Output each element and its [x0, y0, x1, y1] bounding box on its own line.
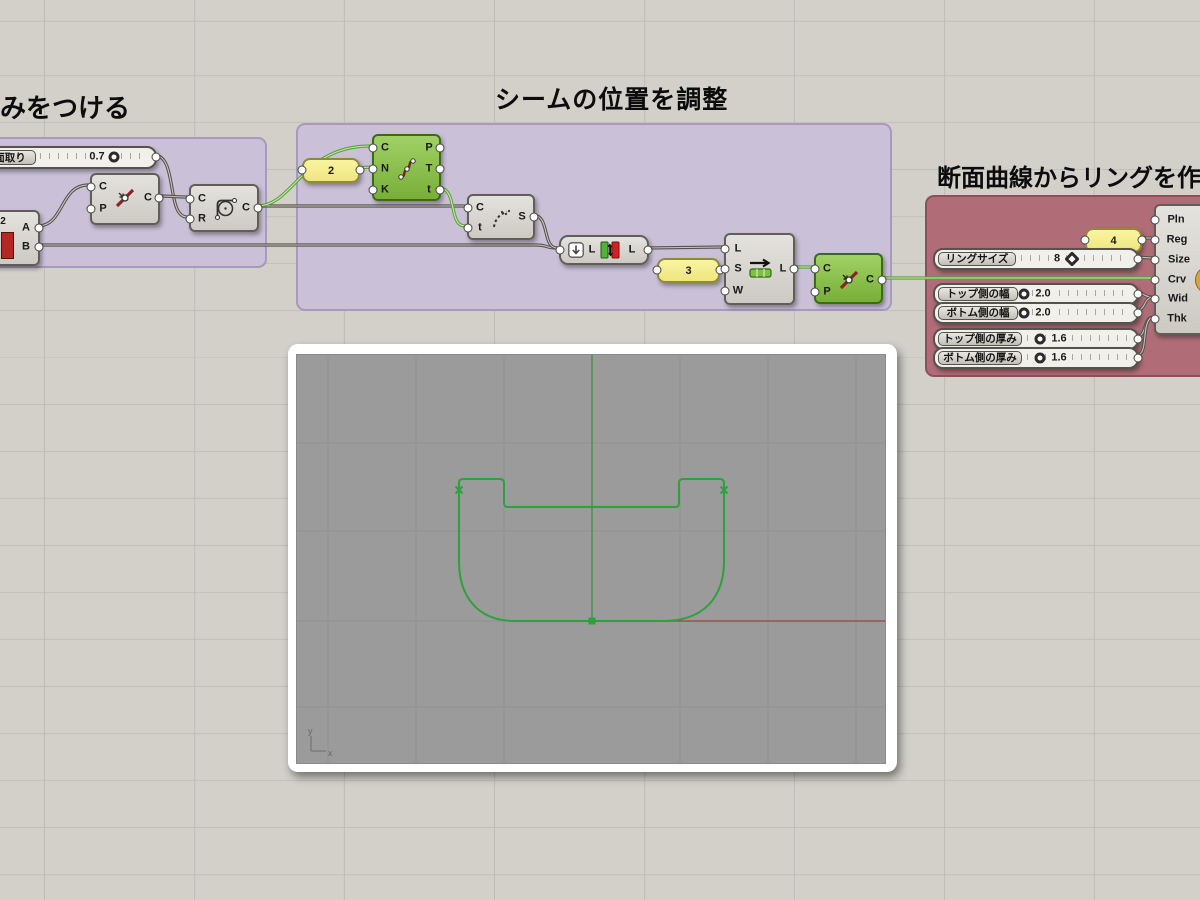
fillet-output-c[interactable]: [254, 204, 263, 213]
fillet-icon: [212, 195, 239, 222]
top-thickness-label: トップ側の厚み: [938, 332, 1022, 346]
shift-input-w[interactable]: [721, 287, 730, 296]
top-thickness-knob[interactable]: [1035, 334, 1046, 345]
panel-2-output[interactable]: [356, 166, 365, 175]
top-thickness-value: 1.6: [1049, 334, 1068, 345]
split-output-b[interactable]: [35, 243, 44, 252]
ring-size-label: リングサイズ: [938, 252, 1016, 266]
flip2-output-c[interactable]: [878, 276, 887, 285]
bottom-thickness-slider[interactable]: ボトム側の厚み 1.6: [933, 347, 1139, 369]
bottom-width-label: ボトム側の幅: [938, 306, 1018, 320]
panel-2-input[interactable]: [298, 166, 307, 175]
component-shatter[interactable]: C t S: [467, 194, 535, 240]
ring-size-slider[interactable]: リングサイズ 8: [933, 248, 1139, 270]
panel-3-value: 3: [685, 265, 691, 277]
fillet-slider-output[interactable]: [152, 153, 161, 162]
reverse-input-l[interactable]: [556, 246, 565, 255]
divide-input-c[interactable]: [369, 144, 378, 153]
panel-3-input[interactable]: [653, 266, 662, 275]
divide-output-t2[interactable]: [436, 186, 445, 195]
ring-input-pln[interactable]: [1151, 216, 1160, 225]
shatter-input-t[interactable]: [464, 224, 473, 233]
rhino-viewport[interactable]: y x: [288, 344, 897, 772]
shift-input-s[interactable]: [721, 265, 730, 274]
flip1-input-c[interactable]: [87, 183, 96, 192]
top-width-knob[interactable]: [1019, 289, 1030, 300]
top-thickness-output[interactable]: [1134, 335, 1143, 344]
viewport-canvas: y x: [296, 354, 886, 764]
axis-indicator: y x: [308, 726, 333, 758]
flip1-input-p[interactable]: [87, 205, 96, 214]
bottom-width-knob[interactable]: [1019, 308, 1030, 319]
group-title-ring: 断面曲線からリングを作成: [937, 158, 1200, 193]
split-icon: [1, 232, 14, 259]
ring-input-wid[interactable]: [1151, 295, 1160, 304]
flatten-icon: [568, 242, 584, 258]
panel-4-value: 4: [1110, 235, 1116, 247]
ring-size-output[interactable]: [1134, 255, 1143, 264]
grasshopper-canvas[interactable]: 丸みをつける シームの位置を調整 断面曲線からリングを作成: [0, 0, 1200, 900]
fillet-input-c[interactable]: [186, 195, 195, 204]
fillet-slider-knob[interactable]: [109, 152, 120, 163]
bottom-thickness-output[interactable]: [1134, 354, 1143, 363]
component-flip-curve-2[interactable]: C P C: [814, 253, 883, 304]
shift-input-l[interactable]: [721, 245, 730, 254]
shift-output-l[interactable]: [790, 265, 799, 274]
viewport-grid: [297, 355, 885, 763]
group-title-rounding: 丸みをつける: [0, 88, 130, 125]
group-title-seam: シームの位置を調整: [495, 80, 728, 116]
viewport-graphics: y x: [297, 355, 885, 763]
flip-curve-icon: [112, 185, 138, 211]
fillet-slider-value: 0.7: [87, 152, 106, 163]
component-fillet[interactable]: C R C: [189, 184, 259, 232]
panel-4-input[interactable]: [1081, 236, 1090, 245]
flip2-input-c[interactable]: [811, 265, 820, 274]
panel-divide-count[interactable]: 2: [302, 158, 360, 183]
ring-input-size[interactable]: [1151, 256, 1160, 265]
top-width-output[interactable]: [1134, 290, 1143, 299]
component-divide-curve[interactable]: C N K P T t: [372, 134, 441, 201]
divide-input-k[interactable]: [369, 186, 378, 195]
bottom-thickness-knob[interactable]: [1035, 353, 1046, 364]
top-width-value: 2.0: [1033, 289, 1052, 300]
flip2-input-p[interactable]: [811, 288, 820, 297]
fillet-slider[interactable]: 面取り 0.7: [0, 146, 157, 169]
ring-input-crv[interactable]: [1151, 276, 1160, 285]
bottom-thickness-label: ボトム側の厚み: [938, 351, 1022, 365]
component-reverse-list[interactable]: L L: [559, 235, 649, 265]
divide-input-n[interactable]: [369, 165, 378, 174]
fillet-slider-label: 面取り: [0, 150, 36, 165]
reverse-list-icon: [597, 239, 623, 261]
divide-output-t[interactable]: [436, 165, 445, 174]
svg-text:y: y: [308, 726, 313, 736]
ring-size-value: 8: [1052, 254, 1062, 265]
panel-shift-offset[interactable]: 3: [657, 258, 720, 283]
shift-list-icon: [745, 255, 775, 283]
flip-curve-icon: [836, 267, 862, 293]
shatter-input-c[interactable]: [464, 204, 473, 213]
shatter-output-s[interactable]: [530, 213, 539, 222]
split-output-a[interactable]: [35, 224, 44, 233]
top-width-label: トップ側の幅: [938, 287, 1018, 301]
bottom-width-output[interactable]: [1134, 309, 1143, 318]
divide-curve-icon: [394, 156, 420, 182]
component-shift-list[interactable]: L S W L: [724, 233, 795, 305]
divide-output-p[interactable]: [436, 144, 445, 153]
component-ring-builder[interactable]: Pln Reg Size Crv Wid Thk: [1154, 204, 1200, 335]
panel-4-output[interactable]: [1138, 236, 1147, 245]
shatter-icon: [488, 205, 514, 231]
component-split[interactable]: 2 A B: [0, 210, 40, 266]
flip1-output-c[interactable]: [155, 194, 164, 203]
bottom-width-value: 2.0: [1033, 308, 1052, 319]
component-flip-curve-1[interactable]: C P C: [90, 173, 160, 225]
fillet-input-r[interactable]: [186, 215, 195, 224]
svg-text:x: x: [328, 748, 333, 758]
curve-seam-point: [589, 618, 596, 625]
ring-input-thk[interactable]: [1151, 315, 1160, 324]
ring-icon: [1190, 262, 1200, 298]
bottom-thickness-value: 1.6: [1049, 353, 1068, 364]
ring-input-reg[interactable]: [1151, 236, 1160, 245]
reverse-output-l[interactable]: [644, 246, 653, 255]
bottom-width-slider[interactable]: ボトム側の幅 2.0: [933, 302, 1139, 324]
panel-2-value: 2: [328, 165, 334, 177]
